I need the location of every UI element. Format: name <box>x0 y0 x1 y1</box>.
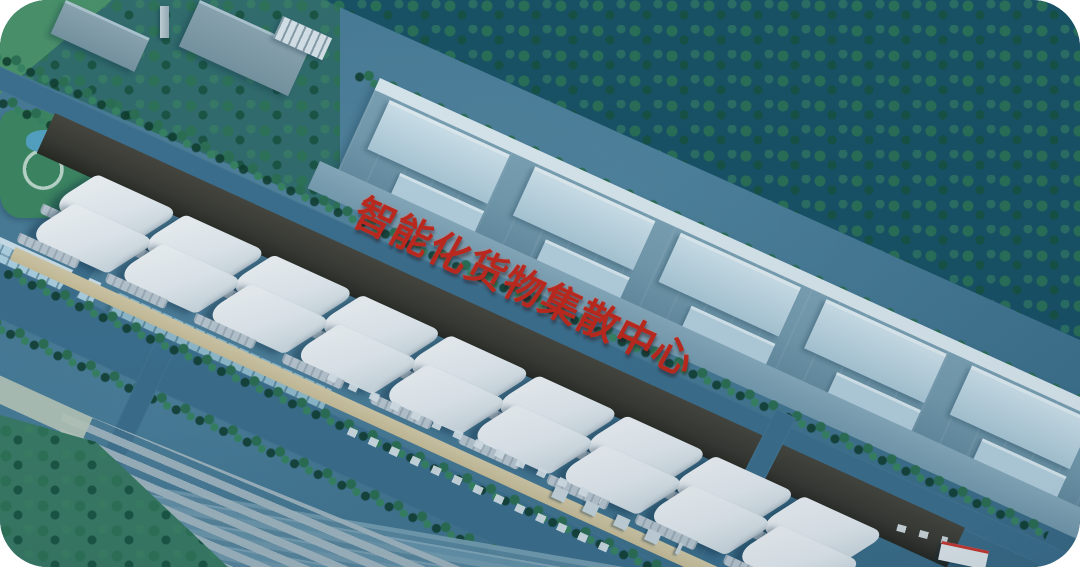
warehouse-facade <box>722 554 786 567</box>
factory-chimney <box>160 6 169 38</box>
rendering-image: 智能化货物集散中心 <box>0 0 1080 567</box>
